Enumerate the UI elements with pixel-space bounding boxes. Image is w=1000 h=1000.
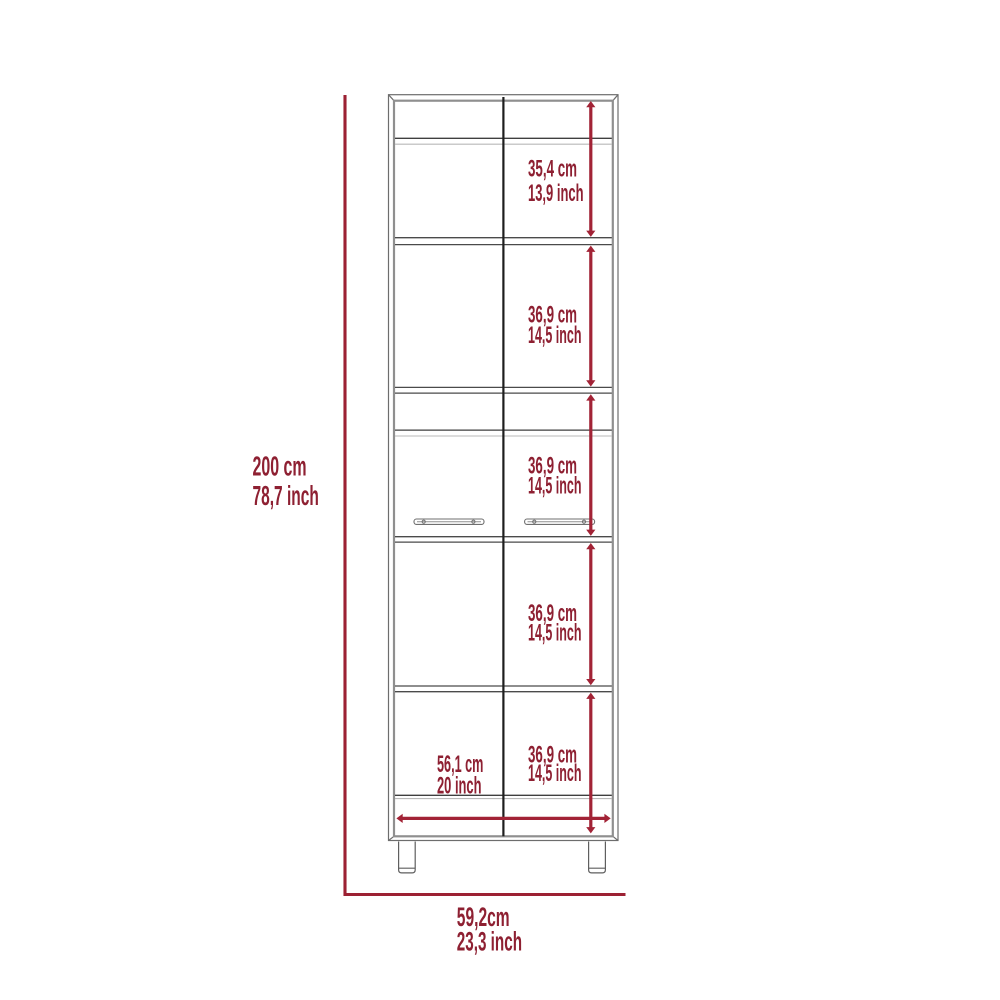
svg-text:14,5 inch: 14,5 inch [528, 761, 582, 787]
svg-text:78,7 inch: 78,7 inch [253, 480, 319, 511]
svg-text:23,3 inch: 23,3 inch [457, 927, 522, 957]
svg-text:200 cm: 200 cm [253, 451, 307, 482]
svg-text:14,5 inch: 14,5 inch [528, 323, 582, 349]
svg-text:35,4 cm: 35,4 cm [528, 156, 577, 182]
svg-text:14,5 inch: 14,5 inch [528, 473, 582, 499]
svg-text:13,9 inch: 13,9 inch [528, 181, 584, 207]
svg-text:14,5 inch: 14,5 inch [528, 621, 582, 647]
svg-text:20 inch: 20 inch [437, 773, 482, 799]
